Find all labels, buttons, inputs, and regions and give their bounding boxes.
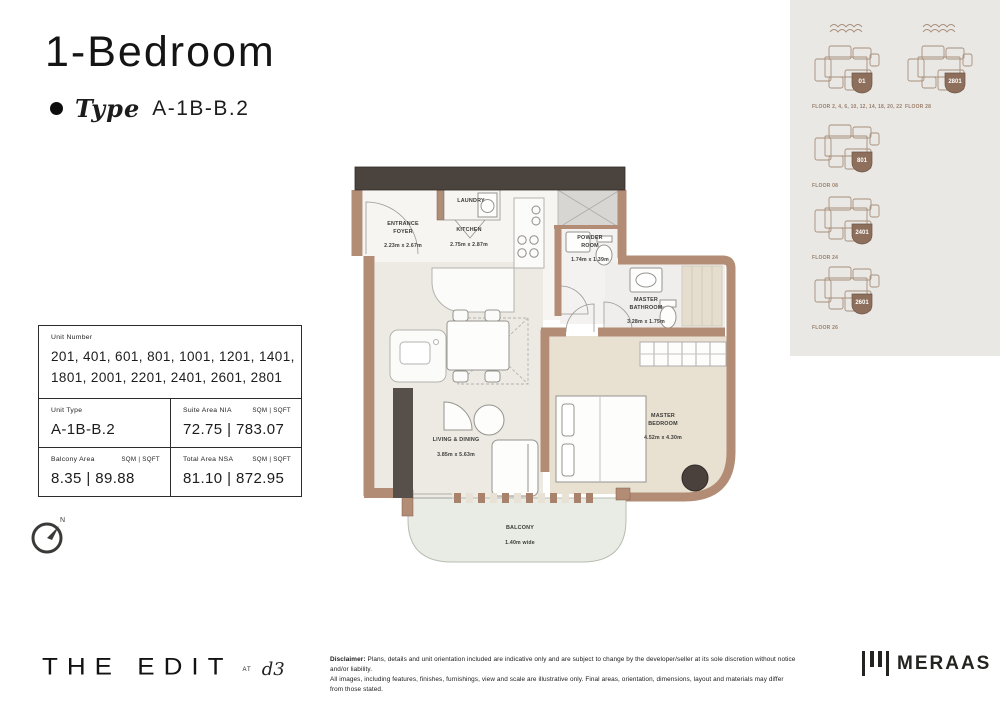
meraas-bars-icon bbox=[862, 650, 890, 677]
meraas-logo: MERAAS bbox=[862, 650, 991, 677]
brand-d3-mark: d3 bbox=[262, 659, 285, 680]
compass-north-label: N bbox=[60, 517, 65, 524]
room-label-master-bedroom: MASTER BEDROOM 4.52m x 4.30m bbox=[644, 406, 682, 450]
unit-number-cell: Unit Number 201, 401, 601, 801, 1001, 12… bbox=[39, 326, 301, 398]
total-area-units: SQM | SQFT bbox=[252, 456, 291, 463]
compass-icon: N bbox=[25, 506, 75, 558]
disclaimer-line1: Plans, details and unit orientation incl… bbox=[330, 656, 795, 673]
balcony-area-cell: Balcony Area SQM | SQFT 8.35 | 89.88 bbox=[39, 447, 170, 496]
page-title: 1-Bedroom bbox=[45, 28, 276, 77]
unit-info-table: Unit Number 201, 401, 601, 801, 1001, 12… bbox=[38, 325, 302, 497]
key-plan-panel: 01 FLOOR 2, 4, 6, 10, 12, 14, 18, 20, 22… bbox=[790, 0, 1000, 356]
bathroom-closet bbox=[682, 266, 722, 326]
waves-icon bbox=[921, 22, 959, 35]
room-label-powder-room: POWDER ROOM 1.74m x 1.39m bbox=[571, 228, 609, 272]
floor-plan: LAUNDRY ENTRANCE FOYER 2.23m x 2.67m KIT… bbox=[345, 158, 745, 570]
bed-icon bbox=[556, 396, 646, 482]
building-key-plan-icon: 801 bbox=[812, 119, 882, 177]
column-icon bbox=[682, 465, 708, 491]
floor-label: FLOOR 26 bbox=[812, 325, 922, 331]
suite-area-value: 72.75 | 783.07 bbox=[183, 421, 291, 438]
unit-type-label: Unit Type bbox=[51, 407, 160, 414]
key-plan-unit-badge: 2401 bbox=[855, 230, 869, 236]
brand-logo: THE EDIT AT d3 bbox=[42, 651, 285, 682]
room-label-living-dining: LIVING & DINING 3.85m x 5.63m bbox=[433, 430, 480, 466]
total-area-cell: Total Area NSA SQM | SQFT 81.10 | 872.95 bbox=[170, 447, 301, 496]
key-plan-unit-badge: 2601 bbox=[855, 300, 869, 306]
disclaimer-text: Disclaimer: Plans, details and unit orie… bbox=[330, 655, 798, 695]
building-key-plan-icon: 2401 bbox=[812, 191, 882, 249]
key-plan-floor-08: 801 FLOOR 08 bbox=[812, 106, 922, 189]
bathroom-sink-icon bbox=[630, 268, 662, 292]
waves-icon bbox=[828, 22, 866, 35]
room-label-kitchen: KITCHEN 2.75m x 2.87m bbox=[450, 220, 488, 256]
unit-number-label: Unit Number bbox=[51, 334, 291, 341]
total-area-label: Total Area NSA bbox=[183, 456, 233, 463]
balcony-area-value: 8.35 | 89.88 bbox=[51, 470, 160, 487]
suite-area-units: SQM | SQFT bbox=[252, 407, 291, 414]
brand-name: THE EDIT bbox=[42, 652, 232, 681]
bullet-icon bbox=[50, 102, 63, 115]
key-plan-floor-26: 2601 FLOOR 26 bbox=[812, 248, 922, 331]
unit-type-value: A-1B-B.2 bbox=[51, 421, 160, 438]
building-key-plan-icon: 2801 bbox=[905, 40, 975, 98]
suite-area-label: Suite Area NIA bbox=[183, 407, 232, 414]
brand-at-label: AT bbox=[242, 667, 251, 673]
type-script-label: Type bbox=[75, 94, 140, 123]
unit-number-value: 201, 401, 601, 801, 1001, 1201, 1401, 18… bbox=[51, 347, 295, 389]
structural-wall-band bbox=[355, 167, 625, 190]
disclaimer-label: Disclaimer: bbox=[330, 656, 366, 663]
tile-area bbox=[558, 190, 620, 228]
building-key-plan-icon: 2601 bbox=[812, 261, 882, 319]
key-plan-unit-badge: 2801 bbox=[948, 79, 962, 85]
sofa-icon bbox=[492, 440, 538, 496]
building-key-plan-icon: 01 bbox=[812, 40, 882, 98]
balcony-area-label: Balcony Area bbox=[51, 456, 95, 463]
balcony-area-units: SQM | SQFT bbox=[121, 456, 160, 463]
suite-area-cell: Suite Area NIA SQM | SQFT 72.75 | 783.07 bbox=[170, 398, 301, 447]
disclaimer-line2: All images, including features, finishes… bbox=[330, 675, 798, 695]
room-label-master-bathroom: MASTER BATHROOM 3.28m x 1.75m bbox=[627, 290, 665, 334]
unit-type-cell: Unit Type A-1B-B.2 bbox=[39, 398, 170, 447]
key-plan-unit-badge: 801 bbox=[857, 158, 868, 164]
meraas-wordmark: MERAAS bbox=[897, 653, 991, 675]
wardrobe-icon bbox=[640, 342, 726, 366]
key-plan-unit-badge: 01 bbox=[858, 78, 866, 85]
island-sink-icon bbox=[390, 330, 446, 382]
room-label-entrance-foyer: ENTRANCE FOYER 2.23m x 2.67m bbox=[384, 214, 422, 258]
type-value: A-1B-B.2 bbox=[152, 97, 249, 121]
unit-type-heading: Type A-1B-B.2 bbox=[50, 94, 249, 123]
key-plan-floor-28: 2801 FLOOR 28 bbox=[905, 22, 1000, 110]
total-area-value: 81.10 | 872.95 bbox=[183, 470, 291, 487]
room-label-laundry: LAUNDRY bbox=[457, 191, 485, 213]
room-label-balcony: BALCONY 1.40m wide bbox=[505, 518, 535, 554]
